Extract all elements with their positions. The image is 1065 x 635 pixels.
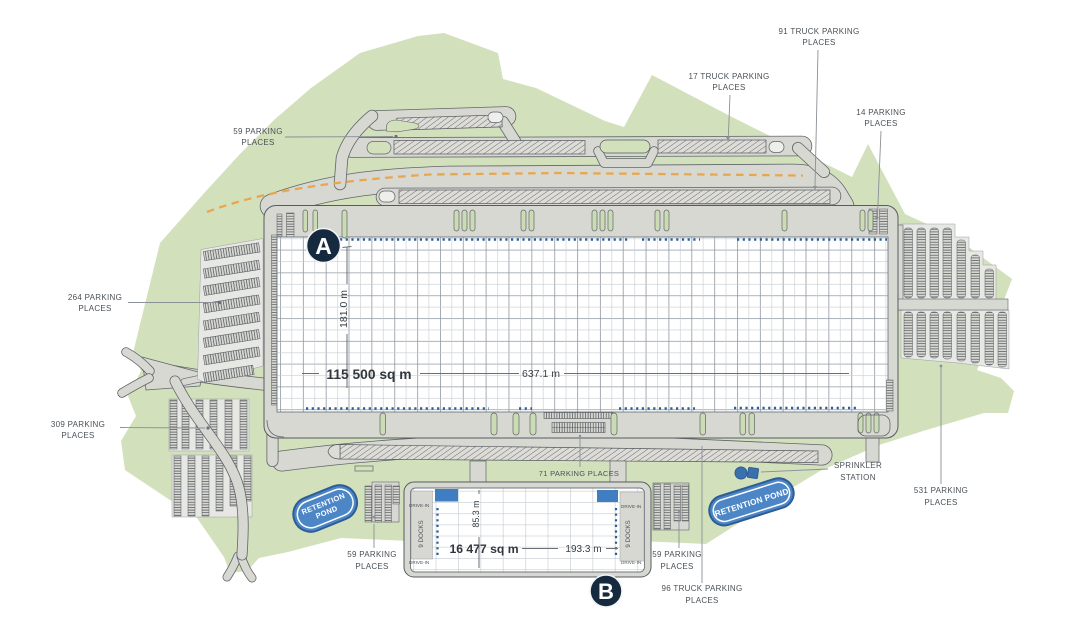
svg-text:DRIVE-IN: DRIVE-IN — [621, 504, 641, 509]
svg-text:71 PARKING PLACES: 71 PARKING PLACES — [539, 469, 619, 478]
svg-text:91 TRUCK PARKING: 91 TRUCK PARKING — [779, 27, 860, 36]
svg-text:264 PARKING: 264 PARKING — [68, 293, 122, 302]
svg-text:PLACES: PLACES — [660, 562, 693, 571]
svg-text:9 DOCKS: 9 DOCKS — [625, 520, 632, 547]
svg-text:17 TRUCK PARKING: 17 TRUCK PARKING — [689, 72, 770, 81]
svg-text:DRIVE-IN: DRIVE-IN — [409, 560, 429, 565]
svg-text:PLACES: PLACES — [355, 562, 388, 571]
svg-text:STATION: STATION — [840, 473, 876, 482]
svg-text:B: B — [598, 579, 614, 604]
svg-text:59 PARKING: 59 PARKING — [347, 550, 397, 559]
svg-text:16 477 sq m: 16 477 sq m — [449, 542, 518, 556]
svg-text:PLACES: PLACES — [241, 138, 274, 147]
svg-text:59 PARKING: 59 PARKING — [652, 550, 702, 559]
svg-text:193.3 m: 193.3 m — [565, 544, 601, 555]
svg-text:PLACES: PLACES — [924, 498, 957, 507]
svg-text:PLACES: PLACES — [712, 83, 745, 92]
svg-text:DRIVE-IN: DRIVE-IN — [409, 503, 429, 508]
svg-text:PLACES: PLACES — [685, 596, 718, 605]
svg-text:9 DOCKS: 9 DOCKS — [418, 520, 425, 547]
svg-text:181.0 m: 181.0 m — [338, 290, 350, 328]
svg-text:96 TRUCK PARKING: 96 TRUCK PARKING — [662, 584, 743, 593]
svg-text:SPRINKLER: SPRINKLER — [834, 461, 882, 470]
svg-text:59 PARKING: 59 PARKING — [233, 127, 283, 136]
svg-text:115 500 sq m: 115 500 sq m — [326, 367, 411, 382]
svg-text:637.1 m: 637.1 m — [522, 368, 560, 380]
svg-text:PLACES: PLACES — [864, 119, 897, 128]
svg-text:85.3 m: 85.3 m — [471, 501, 481, 528]
svg-text:531 PARKING: 531 PARKING — [914, 486, 968, 495]
svg-text:A: A — [315, 233, 332, 259]
svg-text:PLACES: PLACES — [78, 304, 111, 313]
svg-text:309 PARKING: 309 PARKING — [51, 420, 105, 429]
svg-text:PLACES: PLACES — [61, 431, 94, 440]
svg-text:PLACES: PLACES — [802, 38, 835, 47]
svg-text:DRIVE-IN: DRIVE-IN — [621, 560, 641, 565]
svg-text:14 PARKING: 14 PARKING — [856, 108, 906, 117]
